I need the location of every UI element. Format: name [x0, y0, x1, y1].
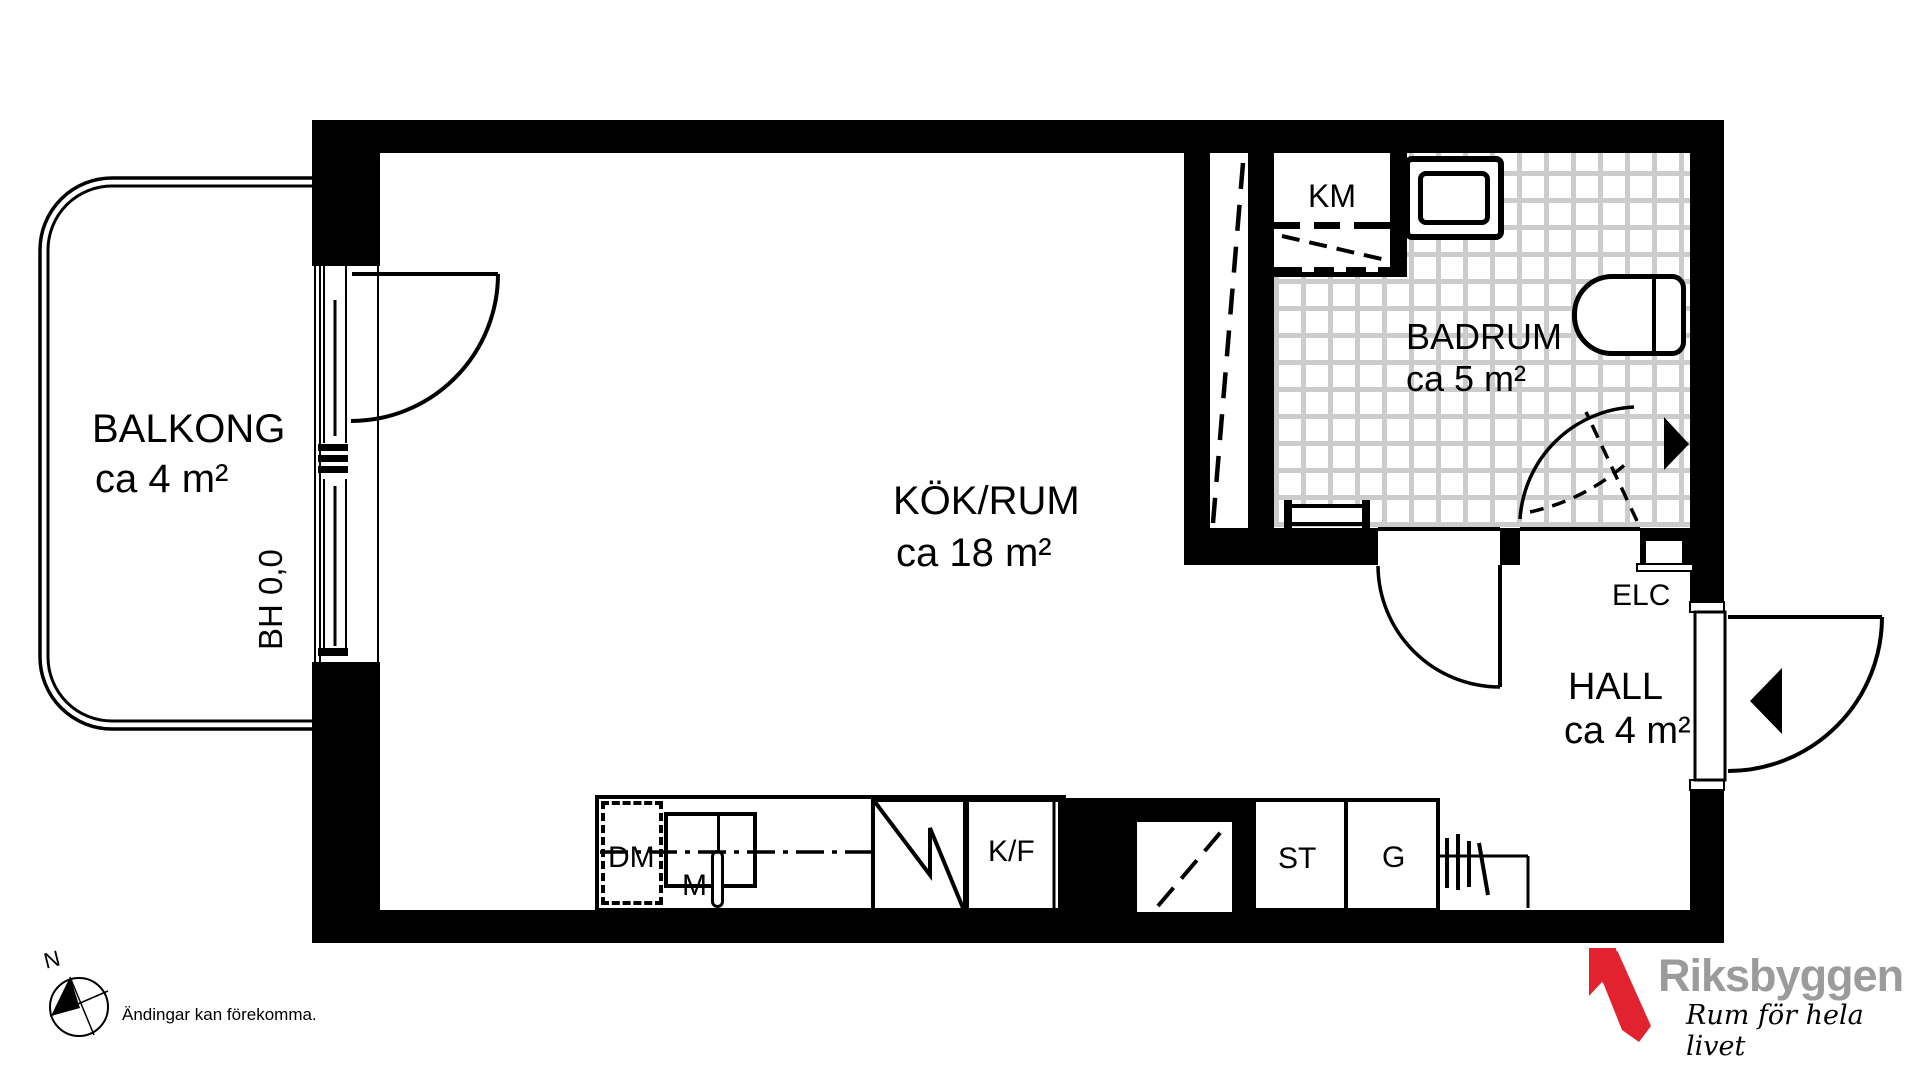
- window-mullion-bar: [318, 444, 348, 451]
- hall-door-swing-arc: [1378, 566, 1500, 687]
- entrance-sill-bottom: [1690, 780, 1724, 790]
- shaft-dashed-line: [1213, 163, 1243, 523]
- floor-plan: BALKONG ca 4 m² BH 0,0 KÖK/RUM ca 18 m² …: [0, 0, 1920, 1080]
- room-label-bathroom: BADRUM: [1406, 318, 1562, 356]
- stove-box: [871, 798, 967, 912]
- km-shelf-gap: [1340, 222, 1354, 229]
- elc-cabinet-front: [1636, 563, 1694, 572]
- label-cleaning-cabinet: ST: [1278, 843, 1316, 875]
- logo-brand-text: Riksbyggen: [1658, 950, 1903, 1002]
- vent-shaft-top-bar: [1137, 798, 1232, 822]
- wall-top: [312, 120, 1724, 153]
- window-mullion-bar: [318, 466, 348, 473]
- kitchen-pillar-left: [1066, 798, 1137, 912]
- balcony-door-swing-arc: [351, 274, 498, 421]
- label-electrical-cabinet: ELC: [1612, 580, 1670, 612]
- window-end-bar: [318, 648, 348, 656]
- compass-axis: [50, 991, 108, 1016]
- compass-circle: [50, 978, 108, 1036]
- label-fridge-freezer: K/F: [988, 836, 1035, 868]
- wall-left-lower: [312, 662, 380, 943]
- entrance-sill-top: [1690, 602, 1724, 612]
- north-needle-icon: [51, 977, 80, 1016]
- label-wardrobe: G: [1382, 842, 1405, 874]
- wall-right-lower: [1690, 790, 1724, 943]
- kitchen-pillar-right: [1232, 798, 1252, 912]
- label-dishwasher: DM: [608, 842, 655, 874]
- entrance-door-swing-arc: [1728, 617, 1882, 771]
- wall-bath-bottom-pillar: [1500, 528, 1520, 565]
- wall-right-upper: [1690, 120, 1724, 602]
- room-area-bathroom: ca 5 m²: [1406, 360, 1526, 398]
- balcony-height-label: BH 0,0: [254, 470, 289, 650]
- km-front-notch: [1366, 267, 1378, 272]
- toilet-tank-line: [1652, 278, 1656, 352]
- km-front-notch: [1302, 267, 1314, 272]
- label-sink-unit: M: [682, 870, 707, 902]
- label-washing-machine: KM: [1308, 180, 1356, 214]
- north-label: N: [41, 946, 62, 972]
- wall-bottom: [312, 910, 1724, 943]
- room-label-balcony: BALKONG: [92, 408, 285, 450]
- km-shelf-gap: [1300, 222, 1314, 229]
- wall-bath-bottom-left: [1184, 528, 1378, 565]
- wall-shaft-right: [1248, 153, 1274, 565]
- room-label-kitchen: KÖK/RUM: [893, 480, 1080, 522]
- toilet: [1572, 274, 1686, 356]
- towel-rail: [1288, 504, 1370, 526]
- km-front-notch: [1334, 267, 1346, 272]
- doorway-header-hall: [1378, 527, 1500, 531]
- room-area-kitchen: ca 18 m²: [896, 532, 1052, 574]
- room-area-hall: ca 4 m²: [1564, 712, 1691, 752]
- room-label-hall: HALL: [1568, 668, 1663, 708]
- logo-tagline-text: Rum för hela livet: [1686, 1000, 1920, 1062]
- bathroom-sink-basin: [1418, 171, 1490, 225]
- faucet: [711, 850, 724, 908]
- riksbyggen-ribbon-icon: [1589, 948, 1616, 996]
- doorway-header-bathroom: [1520, 527, 1640, 531]
- towel-rail-cap: [1362, 500, 1370, 530]
- window-mullion-bar: [318, 455, 348, 462]
- compass-axis: [70, 977, 94, 1035]
- room-area-balcony: ca 4 m²: [95, 458, 228, 500]
- entrance-direction-triangle: [1750, 668, 1782, 734]
- washing-machine-closet: [1274, 153, 1390, 277]
- wall-left-upper: [312, 120, 380, 266]
- towel-rail-cap: [1284, 500, 1292, 530]
- elc-cabinet-slot: [1646, 541, 1682, 565]
- wall-shaft-left: [1184, 153, 1210, 565]
- coat-hook: [1479, 843, 1488, 895]
- riksbyggen-ribbon-icon: [1600, 950, 1651, 1042]
- km-shelf-line: [1274, 222, 1390, 229]
- entrance-door-frame: [1695, 612, 1725, 780]
- disclaimer-text: Ändingar kan förekomma.: [122, 1006, 317, 1024]
